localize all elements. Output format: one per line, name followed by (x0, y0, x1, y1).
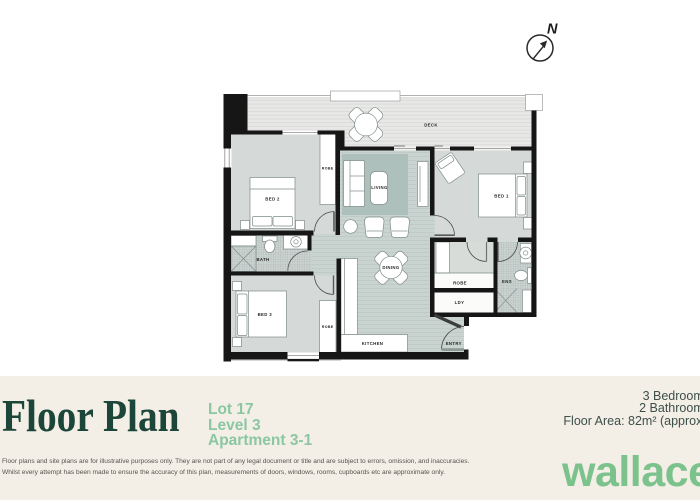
svg-text:ROBE: ROBE (322, 325, 334, 329)
svg-text:BED 3: BED 3 (258, 312, 273, 317)
svg-text:LDY: LDY (455, 300, 465, 305)
svg-text:LIVING: LIVING (371, 185, 388, 190)
svg-text:BED 1: BED 1 (494, 194, 509, 199)
svg-text:BATH: BATH (256, 257, 269, 262)
svg-text:N: N (547, 21, 558, 37)
svg-text:DINING: DINING (382, 265, 399, 270)
svg-text:ENS: ENS (502, 279, 512, 284)
svg-text:BED 2: BED 2 (265, 197, 280, 202)
svg-text:KITCHEN: KITCHEN (362, 341, 384, 346)
svg-text:ENTRY: ENTRY (446, 341, 462, 346)
svg-text:ROBE: ROBE (322, 167, 334, 171)
svg-text:ROBE: ROBE (453, 281, 467, 286)
svg-text:DECK: DECK (424, 123, 438, 128)
